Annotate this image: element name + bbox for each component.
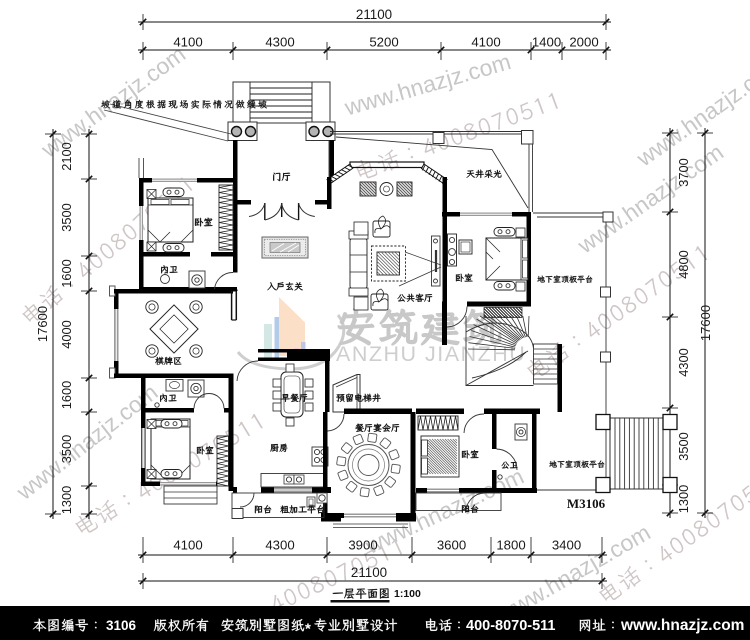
svg-text:2100: 2100 bbox=[59, 142, 74, 170]
svg-text:1800: 1800 bbox=[496, 538, 525, 553]
svg-text:4800: 4800 bbox=[676, 250, 691, 278]
svg-text:www.hnazjz.com: www.hnazjz.com bbox=[620, 617, 744, 634]
svg-text:1300: 1300 bbox=[59, 486, 74, 514]
svg-text:3106: 3106 bbox=[106, 618, 137, 633]
svg-text:3900: 3900 bbox=[348, 538, 377, 553]
svg-text:3500: 3500 bbox=[59, 203, 74, 231]
svg-text:4300: 4300 bbox=[676, 348, 691, 376]
svg-text:M3106: M3106 bbox=[567, 496, 606, 511]
svg-text:3500: 3500 bbox=[676, 432, 691, 460]
svg-text:1300: 1300 bbox=[676, 485, 691, 513]
svg-text:4100: 4100 bbox=[173, 35, 202, 50]
svg-text:1400: 1400 bbox=[532, 35, 561, 50]
svg-text:2000: 2000 bbox=[569, 35, 598, 50]
svg-text:4100: 4100 bbox=[471, 35, 500, 50]
svg-text:3600: 3600 bbox=[437, 538, 466, 553]
svg-text:3500: 3500 bbox=[59, 435, 74, 463]
svg-text:17600: 17600 bbox=[35, 306, 50, 342]
svg-text:*: * bbox=[305, 621, 311, 638]
svg-text:1600: 1600 bbox=[59, 381, 74, 409]
svg-text:3700: 3700 bbox=[676, 158, 691, 186]
svg-text:21100: 21100 bbox=[351, 565, 387, 580]
svg-text:4100: 4100 bbox=[173, 538, 202, 553]
svg-text:1:100: 1:100 bbox=[394, 588, 421, 600]
svg-text:400-8070-511: 400-8070-511 bbox=[466, 618, 556, 634]
svg-text:4300: 4300 bbox=[265, 35, 294, 50]
svg-text:1600: 1600 bbox=[59, 259, 74, 287]
svg-text:21100: 21100 bbox=[356, 7, 392, 22]
svg-text:3400: 3400 bbox=[552, 538, 581, 553]
svg-text:4000: 4000 bbox=[59, 320, 74, 348]
svg-text:4300: 4300 bbox=[265, 538, 294, 553]
svg-text:ANZHU JIANZHU: ANZHU JIANZHU bbox=[336, 342, 526, 366]
svg-text:5200: 5200 bbox=[369, 35, 398, 50]
svg-text:17600: 17600 bbox=[698, 305, 713, 341]
